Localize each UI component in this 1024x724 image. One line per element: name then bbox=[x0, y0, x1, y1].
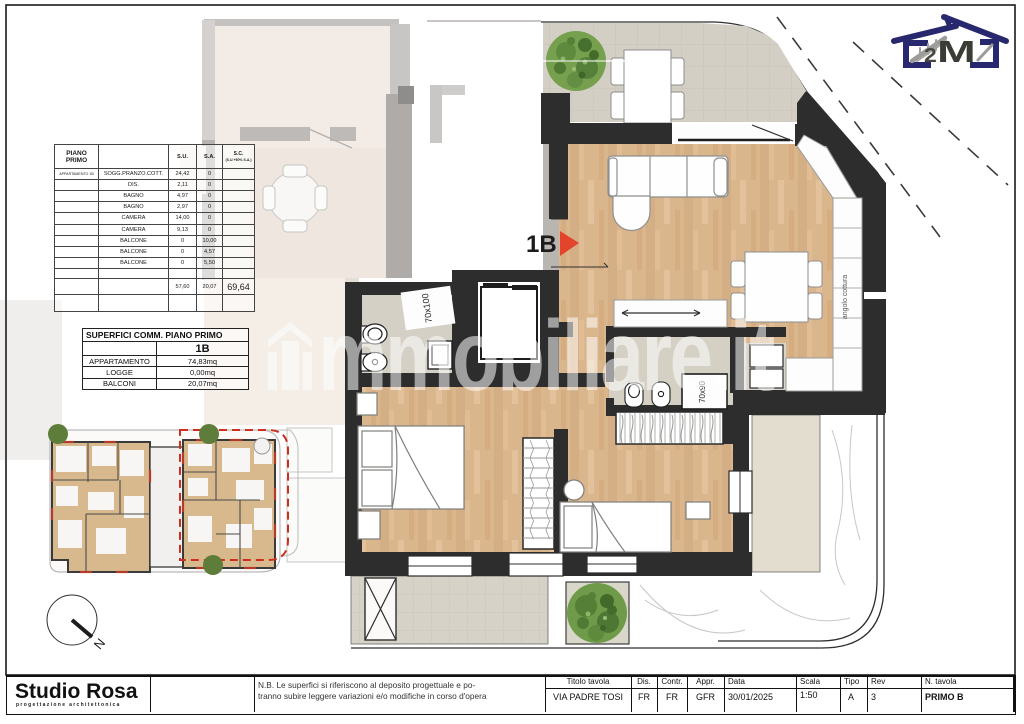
svg-text:M: M bbox=[937, 35, 976, 70]
svg-text:angolo cottura: angolo cottura bbox=[842, 275, 849, 319]
svg-text:N: N bbox=[91, 635, 109, 652]
svg-text:2: 2 bbox=[924, 43, 937, 66]
svg-text:1B: 1B bbox=[526, 231, 557, 258]
svg-text:mmobiliare.it: mmobiliare.it bbox=[318, 301, 775, 413]
